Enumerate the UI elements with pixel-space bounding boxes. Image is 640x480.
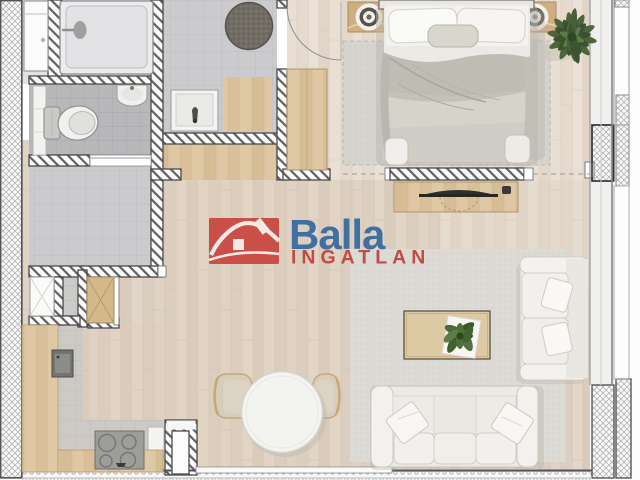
svg-text:INGATLAN: INGATLAN bbox=[291, 247, 430, 269]
